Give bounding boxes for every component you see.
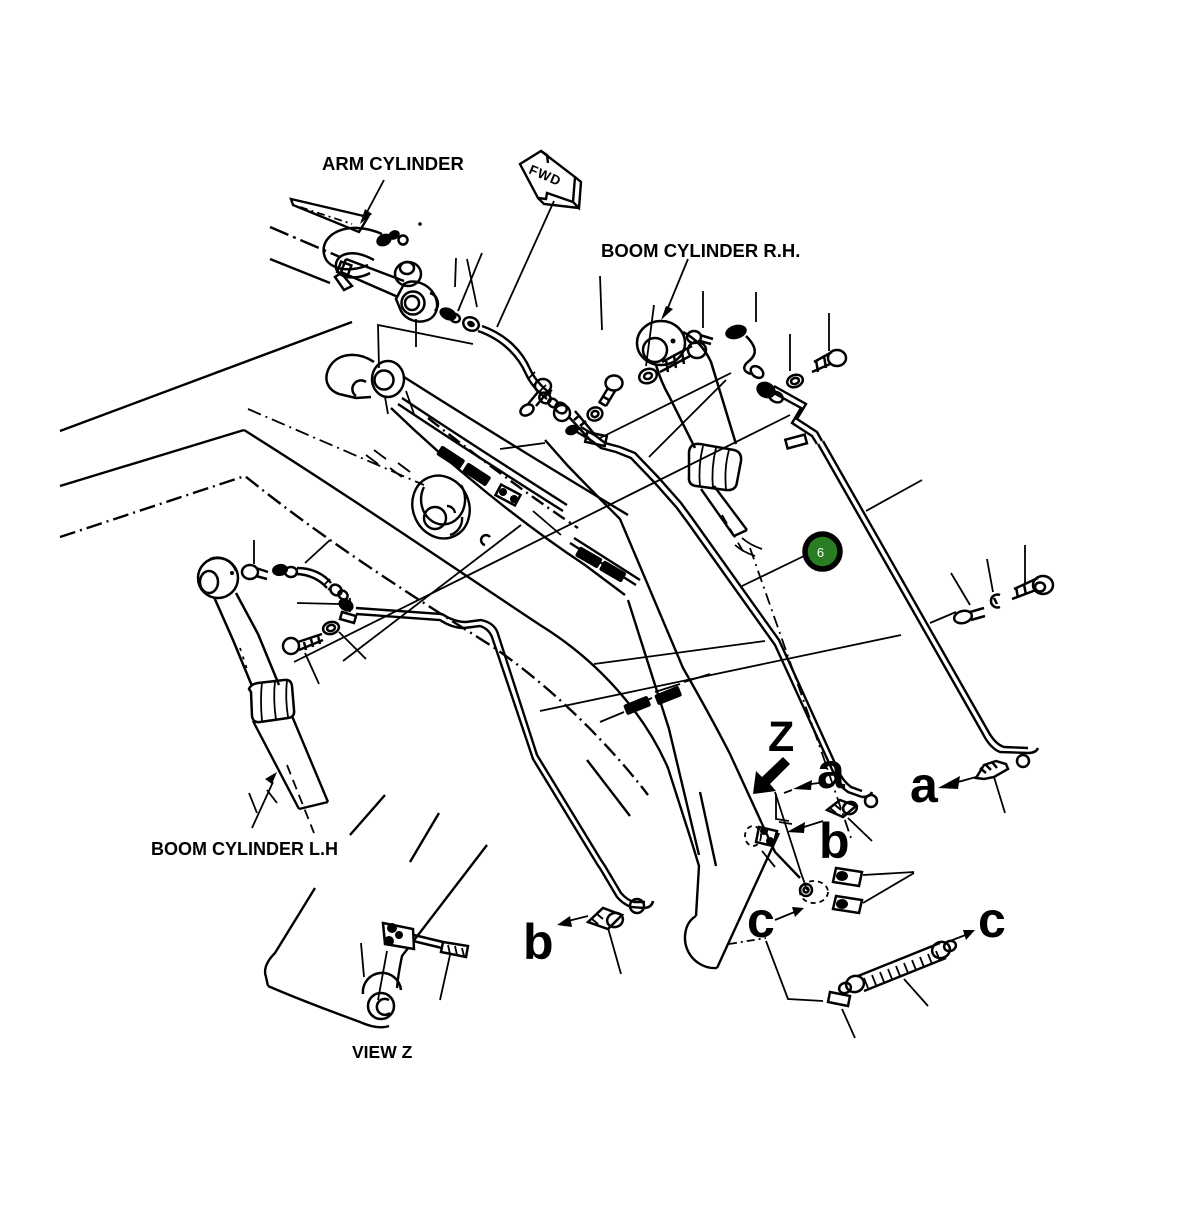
svg-text:Z: Z: [768, 713, 794, 761]
svg-text:c: c: [978, 892, 1006, 948]
svg-text:BOOM CYLINDER L.H: BOOM CYLINDER L.H: [151, 839, 338, 859]
svg-text:b: b: [819, 813, 850, 869]
svg-text:6: 6: [817, 545, 824, 560]
svg-text:b: b: [523, 914, 554, 970]
svg-text:VIEW Z: VIEW Z: [352, 1042, 413, 1062]
svg-text:BOOM CYLINDER R.H.: BOOM CYLINDER R.H.: [601, 240, 800, 261]
svg-text:ARM CYLINDER: ARM CYLINDER: [322, 153, 464, 174]
svg-text:a: a: [817, 743, 846, 799]
svg-text:a: a: [910, 757, 939, 813]
